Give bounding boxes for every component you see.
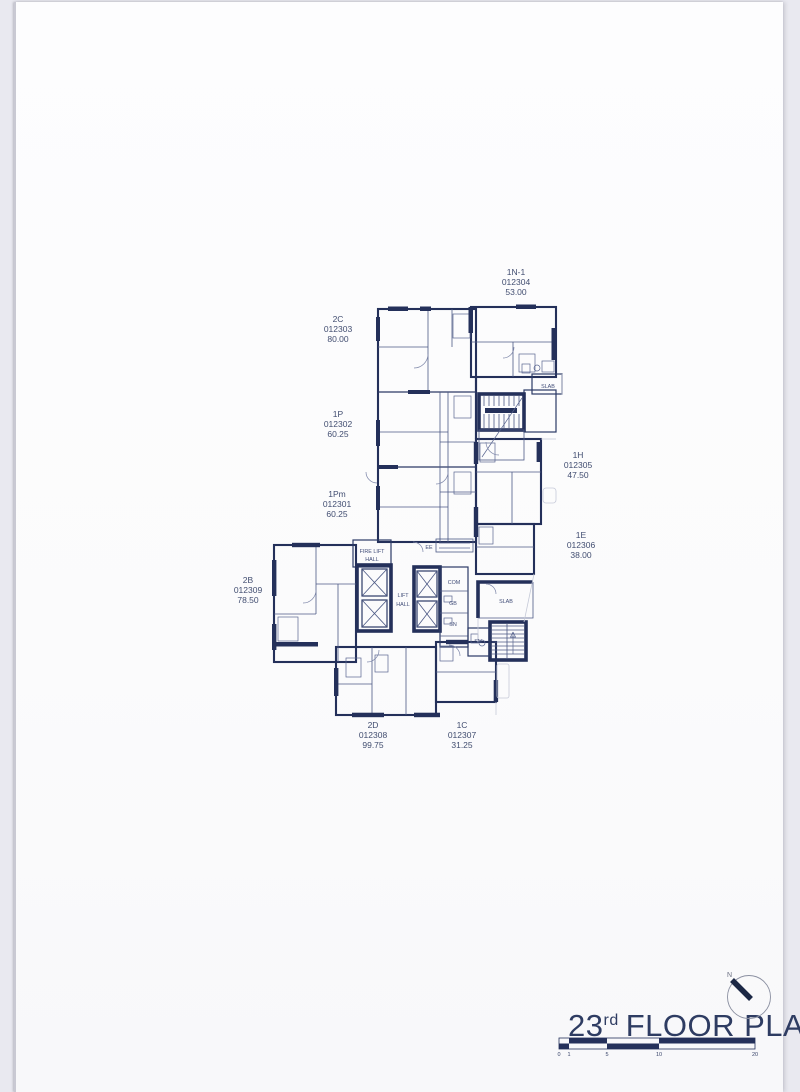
unit-label-1H: 1H 012305 47.50 <box>564 450 593 480</box>
unit-label-2D: 2D 012308 99.75 <box>359 720 388 750</box>
lift-hall-label: LIFT <box>397 593 409 599</box>
lift-shaft <box>417 571 437 597</box>
svg-text:012308: 012308 <box>359 730 388 740</box>
svg-text:012301: 012301 <box>323 499 352 509</box>
svg-text:60.25: 60.25 <box>326 509 348 519</box>
svg-text:2B: 2B <box>243 575 254 585</box>
svg-text:1C: 1C <box>457 720 468 730</box>
north-arrow-icon: N <box>718 966 778 1026</box>
svg-text:2C: 2C <box>333 314 344 324</box>
north-label: N <box>727 972 732 979</box>
structural-columns <box>272 305 556 718</box>
svg-text:60.25: 60.25 <box>327 429 349 439</box>
lift-shaft <box>417 601 437 627</box>
svg-text:1E: 1E <box>576 530 587 540</box>
scale-tick-20: 20 <box>752 1052 758 1058</box>
svg-text:80.00: 80.00 <box>327 334 349 344</box>
svg-text:1H: 1H <box>573 450 584 460</box>
unit-label-1E: 1E 012306 38.00 <box>567 530 596 560</box>
svg-text:012304: 012304 <box>502 277 531 287</box>
scale-bar: 0 1 5 10 20 <box>554 1035 766 1061</box>
svg-text:2D: 2D <box>368 720 379 730</box>
lift-shaft <box>362 600 387 627</box>
unit-label-1C: 1C 012307 31.25 <box>448 720 477 750</box>
svg-text:012309: 012309 <box>234 585 263 595</box>
unit-label-1Pm: 1Pm 012301 60.25 <box>323 489 352 519</box>
unit-label-1N-1: 1N-1 012304 53.00 <box>502 267 531 297</box>
svg-text:53.00: 53.00 <box>505 287 527 297</box>
svg-text:47.50: 47.50 <box>567 470 589 480</box>
scale-tick-1: 1 <box>567 1052 570 1058</box>
ee-label: EE <box>425 545 433 551</box>
svg-text:1Pm: 1Pm <box>328 489 345 499</box>
unit-label-2B: 2B 012309 78.50 <box>234 575 263 605</box>
gb-label: GB <box>449 601 457 607</box>
svg-text:99.75: 99.75 <box>362 740 384 750</box>
sn-label: SN <box>449 622 457 628</box>
room-labels: FIRE LIFT HALL LIFT HALL EE COM GB SN SN… <box>360 384 556 645</box>
sn-label-2: SN <box>474 639 482 645</box>
scale-tick-5: 5 <box>605 1052 608 1058</box>
lift-shaft <box>362 569 387 596</box>
svg-text:012307: 012307 <box>448 730 477 740</box>
svg-text:31.25: 31.25 <box>451 740 473 750</box>
slab-label-upper: SLAB <box>541 384 555 390</box>
floor-plan-sheet: FIRE LIFT HALL LIFT HALL EE COM GB SN SN… <box>14 2 783 1092</box>
fire-lift-hall-label-2: HALL <box>365 557 379 563</box>
staircase-top <box>479 394 524 460</box>
lift-hall-label-2: HALL <box>396 602 410 608</box>
unit-label-2C: 2C 012303 80.00 <box>324 314 353 344</box>
svg-text:012303: 012303 <box>324 324 353 334</box>
floor-plan-drawing: FIRE LIFT HALL LIFT HALL EE COM GB SN SN… <box>212 255 642 765</box>
faint-projection-lines <box>478 374 562 715</box>
svg-text:012302: 012302 <box>324 419 353 429</box>
scale-tick-10: 10 <box>656 1052 662 1058</box>
svg-text:1N-1: 1N-1 <box>507 267 526 277</box>
scale-tick-0: 0 <box>557 1052 560 1058</box>
slab-label-mid: SLAB <box>499 599 513 605</box>
svg-text:38.00: 38.00 <box>570 550 592 560</box>
photo-background: { "sheet": { "title": { "floor_number": … <box>0 0 800 1092</box>
slab-areas <box>468 374 562 656</box>
unit-label-1P: 1P 012302 60.25 <box>324 409 353 439</box>
svg-text:012306: 012306 <box>567 540 596 550</box>
svg-text:78.50: 78.50 <box>237 595 259 605</box>
com-label: COM <box>448 580 461 586</box>
floor-ordinal: rd <box>603 1012 618 1029</box>
svg-text:012305: 012305 <box>564 460 593 470</box>
fire-lift-hall-label: FIRE LIFT <box>360 549 386 555</box>
svg-text:1P: 1P <box>333 409 344 419</box>
